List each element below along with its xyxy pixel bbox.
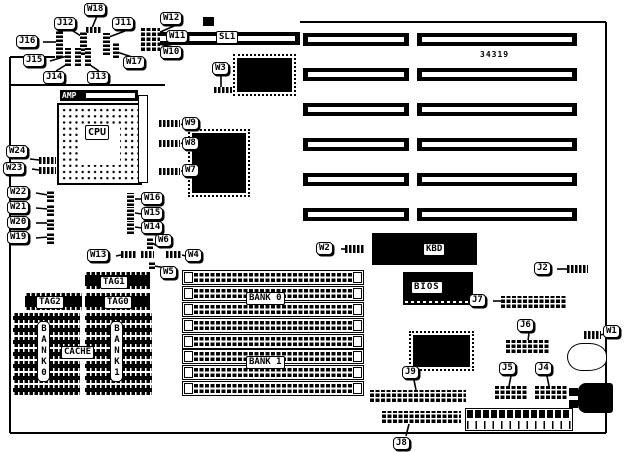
w9-jumper — [159, 120, 180, 127]
tag0-label: TAG0 — [104, 296, 132, 309]
label-w3: W3 — [212, 62, 229, 75]
simm-contacts — [194, 368, 352, 377]
simm-contacts — [194, 384, 352, 393]
w15-jumper — [127, 207, 134, 220]
w20-jumper — [47, 218, 54, 230]
small-chip — [203, 17, 214, 26]
simm-contacts — [194, 273, 352, 282]
j8-header — [382, 411, 461, 423]
label-w24: W24 — [6, 145, 28, 158]
w2-jumper — [345, 245, 364, 253]
callout-tail — [30, 159, 39, 160]
kbd-label: KBD — [423, 243, 445, 256]
isa-slot — [417, 68, 577, 81]
j13-pin-strip — [85, 48, 91, 66]
label-w15: W15 — [141, 207, 163, 220]
label-j14: J14 — [43, 71, 65, 84]
din-tab — [569, 388, 578, 396]
label-w7: W7 — [182, 164, 199, 177]
battery-outline — [567, 343, 607, 371]
label-w10: W10 — [160, 46, 182, 59]
label-j13: J13 — [87, 71, 109, 84]
label-j11: J11 — [112, 17, 134, 30]
label-w18: W18 — [84, 3, 106, 16]
cache-dip-chip — [85, 385, 152, 395]
label-j12: J12 — [54, 17, 76, 30]
keyboard-din-connector — [578, 383, 613, 413]
label-w23: W23 — [3, 162, 25, 175]
motherboard-diagram: AMP W18 J12 J11 W12 W11 W10 J16 J15 J14 … — [0, 0, 628, 452]
simm-latch — [184, 351, 193, 362]
isa-slot — [303, 68, 409, 81]
callout-tail — [414, 380, 416, 390]
simm-latch — [184, 367, 193, 378]
w8-jumper — [159, 140, 180, 147]
w13-jumper — [121, 251, 136, 258]
isa-slot — [303, 33, 409, 46]
j14-pin-strip — [75, 48, 81, 66]
callout-tail — [406, 424, 409, 436]
din-tab — [569, 400, 578, 408]
part-number: 34319 — [480, 50, 509, 59]
w10-w11-w12-jumper-block — [141, 28, 160, 51]
chip-near-w7-w8 — [192, 133, 246, 193]
label-sl1: SL1 — [216, 31, 238, 44]
simm-latch — [353, 304, 362, 315]
label-w9: W9 — [182, 117, 199, 130]
label-w5: W5 — [160, 266, 177, 279]
isa-slot — [303, 138, 409, 151]
bios-label: BIOS — [411, 281, 443, 294]
bank1-column-label: BANK1 — [110, 321, 123, 382]
tag2-label: TAG2 — [36, 296, 64, 309]
w13-jumper — [141, 251, 154, 258]
label-w11: W11 — [166, 30, 188, 43]
j11-pin-strip — [103, 33, 110, 55]
label-w8: W8 — [182, 137, 199, 150]
j15-pin-strip — [65, 48, 71, 66]
power-connector-pins — [467, 410, 571, 418]
w24-jumper — [39, 157, 56, 164]
label-w16: W16 — [141, 192, 163, 205]
tag1-label: TAG1 — [100, 276, 128, 289]
simm-socket — [182, 318, 364, 333]
cpu-socket — [57, 103, 142, 185]
power-connector-teeth — [467, 421, 571, 429]
label-w14: W14 — [141, 221, 163, 234]
callout-tail — [547, 376, 549, 386]
label-w12: W12 — [160, 12, 182, 25]
label-w21: W21 — [7, 201, 29, 214]
w1-jumper — [584, 331, 601, 339]
label-w22: W22 — [7, 186, 29, 199]
label-j16: J16 — [16, 35, 38, 48]
label-w17: W17 — [123, 56, 145, 69]
label-j8: J8 — [393, 437, 410, 450]
isa-slot — [417, 173, 577, 186]
simm-socket — [182, 381, 364, 396]
isa-slot — [417, 138, 577, 151]
cache-label: CACHE — [61, 346, 94, 359]
callout-tail — [32, 169, 39, 170]
cpu-label: CPU — [85, 125, 109, 140]
label-w13: W13 — [87, 249, 109, 262]
label-w6: W6 — [155, 234, 172, 247]
w14-jumper — [127, 221, 134, 234]
amp-slot-stripe — [86, 93, 135, 98]
bank0-simm-label: BANK 0 — [246, 292, 285, 305]
isa-slot — [417, 208, 577, 221]
label-w4: W4 — [185, 249, 202, 262]
bank0-column-label: BANK0 — [37, 321, 50, 382]
w4-jumper — [166, 251, 181, 258]
simm-latch — [353, 320, 362, 331]
j9-header — [370, 390, 466, 402]
label-w19: W19 — [7, 231, 29, 244]
amp-label: AMP — [62, 91, 76, 100]
zif-lever — [138, 95, 148, 183]
label-j9: J9 — [402, 366, 419, 379]
simm-contacts — [194, 337, 352, 346]
isa-slot — [303, 173, 409, 186]
label-j2: J2 — [534, 262, 551, 275]
callout-tail — [509, 376, 511, 386]
w6-jumper — [147, 238, 153, 249]
isa-slot — [417, 33, 577, 46]
simm-latch — [353, 272, 362, 283]
j7-header — [501, 296, 566, 308]
simm-latch — [184, 336, 193, 347]
simm-contacts — [194, 305, 352, 314]
label-j6: J6 — [517, 319, 534, 332]
label-j7: J7 — [469, 294, 486, 307]
simm-latch — [353, 383, 362, 394]
simm-latch — [184, 304, 193, 315]
callout-tail — [109, 31, 125, 37]
label-j15: J15 — [23, 54, 45, 67]
label-w2: W2 — [316, 242, 333, 255]
w3-jumper — [214, 87, 232, 93]
w22-jumper — [47, 190, 54, 202]
label-j4: J4 — [535, 362, 552, 375]
chip-near-j9 — [413, 335, 470, 367]
j6-header — [506, 340, 549, 353]
simm-latch — [353, 288, 362, 299]
simm-latch — [353, 336, 362, 347]
isa-slot — [303, 103, 409, 116]
simm-socket — [182, 270, 364, 285]
w18-jumper — [86, 27, 102, 33]
simm-socket — [182, 334, 364, 349]
j5-header — [495, 386, 528, 399]
chip-near-w3 — [237, 58, 292, 92]
label-w1: W1 — [603, 325, 620, 338]
w7-jumper — [159, 168, 180, 175]
amp-slot: AMP — [60, 90, 138, 101]
j2-jumper — [567, 265, 588, 273]
w19-jumper — [47, 232, 54, 244]
simm-latch — [184, 272, 193, 283]
w23-jumper — [39, 167, 56, 174]
simm-latch — [184, 320, 193, 331]
simm-latch — [353, 351, 362, 362]
simm-latch — [184, 383, 193, 394]
power-connector — [465, 408, 573, 431]
label-j5: J5 — [499, 362, 516, 375]
simm-latch — [184, 288, 193, 299]
simm-contacts — [194, 321, 352, 330]
label-w20: W20 — [7, 216, 29, 229]
j16-pin-strip — [56, 30, 63, 58]
w5-jumper — [149, 261, 155, 269]
isa-slot — [303, 208, 409, 221]
bank1-simm-label: BANK 1 — [246, 356, 285, 369]
w17-jumper — [113, 42, 119, 58]
w16-jumper — [127, 193, 134, 206]
cache-dip-chip — [13, 385, 80, 395]
w21-jumper — [47, 204, 54, 216]
simm-latch — [353, 367, 362, 378]
isa-slot — [417, 103, 577, 116]
j4-header — [535, 386, 568, 399]
